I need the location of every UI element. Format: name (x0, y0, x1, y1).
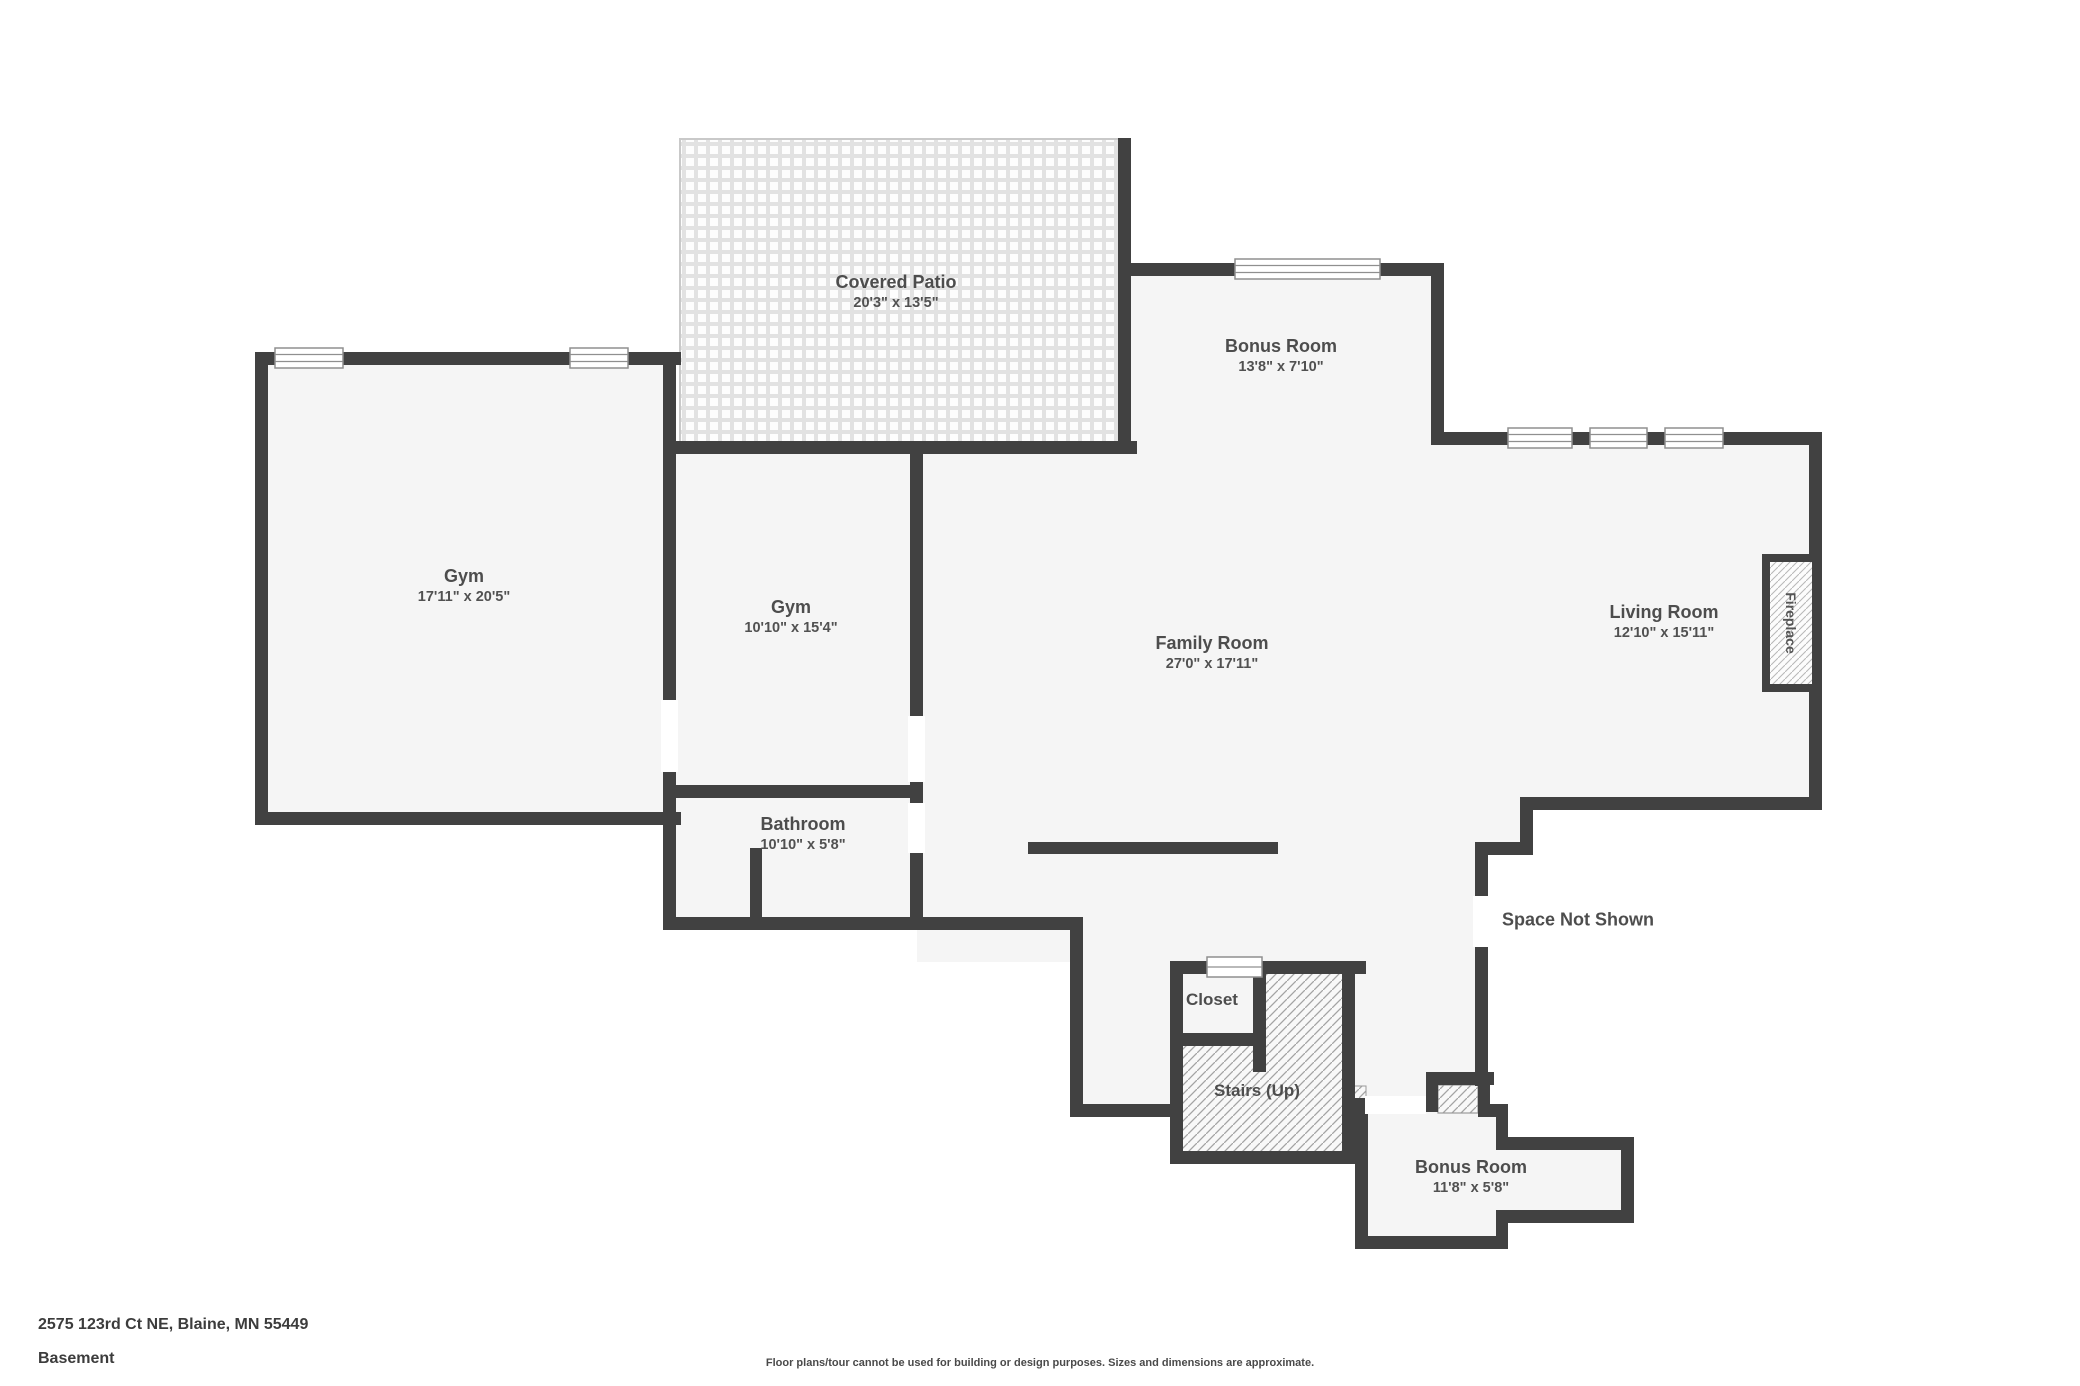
window-icon (1590, 428, 1647, 448)
disclaimer-text: Floor plans/tour cannot be used for buil… (766, 1357, 1314, 1369)
railing-wall (1028, 842, 1278, 854)
floor-name: Basement (38, 1350, 114, 1368)
floor-plan-drawing (0, 0, 2080, 1386)
window-icon (1665, 428, 1723, 448)
property-address: 2575 123rd Ct NE, Blaine, MN 55449 (38, 1316, 308, 1334)
window-icon (1508, 428, 1572, 448)
floor-plan-page: Covered Patio 20'3" x 13'5" Bonus Room 1… (0, 0, 2080, 1386)
window-icon (570, 348, 628, 368)
window-icon (275, 348, 343, 368)
closet-door-icon (1207, 957, 1262, 977)
covered-patio-area (679, 138, 1118, 444)
window-icon (1235, 259, 1380, 279)
fireplace-label: Fireplace (1783, 592, 1799, 653)
